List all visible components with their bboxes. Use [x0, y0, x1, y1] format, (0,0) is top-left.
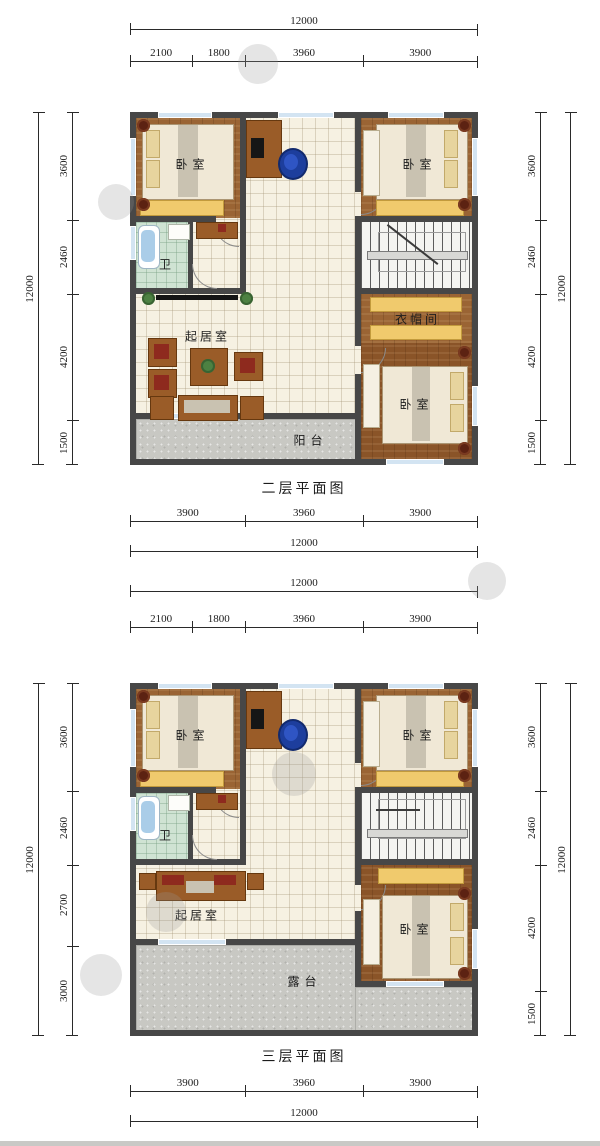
nightstand-lamp: [458, 442, 471, 455]
wall-inner: [355, 112, 361, 192]
wall-inner: [130, 859, 246, 865]
dim-value: 12000: [24, 275, 36, 303]
bed-pillow: [444, 160, 458, 188]
window: [472, 709, 478, 767]
dim-value: 12000: [130, 537, 478, 549]
dim-segment: 12000: [130, 532, 478, 552]
window: [158, 112, 212, 118]
floor-plan-sheet: 12000 2100 1800 3960 3900 12000 3600 246…: [0, 0, 600, 1146]
wardrobe: [140, 200, 224, 216]
tv: [156, 295, 238, 300]
bed-pillow: [444, 130, 458, 158]
watermark-circle: [98, 184, 134, 220]
nightstand-lamp: [137, 198, 150, 211]
dim-segment: 12000: [130, 1102, 478, 1122]
desk-chair-seat: [284, 725, 298, 741]
stair-handrail: [367, 251, 468, 260]
dim-value: 12000: [556, 275, 568, 303]
desk-chair-seat: [284, 154, 298, 170]
vase: [218, 795, 226, 803]
plan2-dim-bottom-segments: 3900 3960 3900: [130, 1072, 478, 1092]
room-label-bedroom-tl: 卧室: [170, 156, 209, 173]
plan1-dim-right-total: 12000: [570, 112, 571, 465]
dim-value: 4200: [526, 917, 538, 939]
dim-segment: 2460: [540, 220, 541, 294]
dim-value: 3900: [130, 507, 245, 519]
room-label-cloak: 衣帽间: [392, 311, 440, 328]
dim-segment: 3900: [363, 502, 478, 522]
wall-bottom: [130, 1030, 478, 1036]
dim-value: 2460: [526, 246, 538, 268]
plan2-dim-right-segments: 3600 2460 4200 1500: [540, 683, 541, 1036]
plan2-dim-top-total: 12000: [130, 572, 478, 592]
wall-inner: [355, 787, 361, 885]
sofa-cushion: [214, 875, 236, 885]
room-label-bedroom-tr: 卧室: [397, 727, 436, 744]
computer-monitor: [251, 709, 264, 729]
dim-segment: 3960: [245, 502, 362, 522]
armchair-cushion: [154, 344, 169, 359]
dim-value: 3900: [363, 47, 478, 59]
dim-value: 3600: [58, 726, 70, 748]
vase: [218, 224, 226, 232]
dim-value: 1800: [192, 47, 245, 59]
bed-pillow: [146, 701, 160, 729]
window: [130, 709, 136, 767]
stair-arrow: [376, 809, 420, 811]
room-label-bedroom-tl: 卧室: [170, 727, 209, 744]
plan1-dim-left-segments: 3600 2460 4200 1500: [72, 112, 73, 465]
plan1-title: 二层平面图: [262, 478, 347, 498]
dim-value: 1500: [526, 432, 538, 454]
sofa-seat: [186, 881, 214, 893]
room-terrace: [355, 987, 474, 1032]
hall-cabinet: [196, 793, 238, 810]
wall-inner: [355, 859, 478, 865]
room-label-bath: 卫: [159, 256, 171, 273]
side-table: [150, 396, 174, 420]
room-label-terrace: 露台: [282, 973, 321, 990]
dim-segment: 4200: [540, 865, 541, 991]
watermark-circle: [80, 954, 122, 996]
dim-segment: 3960: [245, 1072, 362, 1092]
dim-segment: 3600: [540, 112, 541, 220]
bed-pillow: [146, 160, 160, 188]
dim-value: 3900: [363, 507, 478, 519]
plan2-dim-left-total: 12000: [38, 683, 39, 1036]
bed-pillow: [146, 130, 160, 158]
wall-inner: [355, 288, 478, 294]
window: [388, 683, 444, 689]
window: [130, 226, 136, 260]
sofa-cushion: [184, 400, 230, 413]
window: [386, 981, 444, 987]
dim-value: 12000: [130, 15, 478, 27]
side-table: [240, 396, 264, 420]
room-label-living: 起居室: [182, 328, 230, 345]
wall-inner: [355, 216, 361, 346]
dim-value: 12000: [130, 1107, 478, 1119]
nightstand-lamp: [137, 119, 150, 132]
closet: [363, 899, 380, 965]
sofa-cushion: [162, 875, 184, 885]
bed-pillow: [450, 372, 464, 400]
dim-segment: 4200: [540, 294, 541, 420]
plan2-dim-top-segments: 2100 1800 3960 3900: [130, 608, 478, 628]
dim-value: 2700: [58, 894, 70, 916]
third-floor-plan-canvas: 卧室 卧室 卫 起居室 卧室 露台: [130, 683, 478, 1036]
room-label-bedroom-br: 卧室: [394, 921, 433, 938]
window: [388, 112, 444, 118]
dim-value: 3960: [245, 507, 362, 519]
nightstand-lamp: [458, 887, 471, 900]
dim-value: 3000: [58, 980, 70, 1002]
bed-pillow: [450, 903, 464, 931]
bathtub-basin: [141, 801, 155, 833]
bathtub-basin: [141, 230, 155, 262]
nightstand-lamp: [137, 690, 150, 703]
dim-segment: 12000: [38, 683, 39, 1036]
window: [472, 138, 478, 196]
dim-value: 1800: [192, 613, 245, 625]
table-plant: [201, 359, 215, 373]
bed-pillow: [450, 937, 464, 965]
sheet-edge: [0, 1141, 600, 1146]
dim-value: 2460: [526, 817, 538, 839]
wall-living-terrace: [130, 939, 158, 945]
closet: [363, 701, 380, 767]
wall-inner: [355, 216, 478, 222]
dim-segment: 12000: [130, 572, 478, 592]
dim-segment: 2460: [540, 791, 541, 865]
nightstand-lamp: [458, 119, 471, 132]
dim-segment: 1500: [540, 420, 541, 465]
plan1-dim-top-segments: 2100 1800 3960 3900: [130, 42, 478, 62]
dim-segment: 3900: [130, 502, 245, 522]
dim-segment: 2460: [72, 220, 73, 294]
armchair-cushion: [240, 358, 255, 373]
dim-value: 3960: [245, 613, 362, 625]
dim-segment: 4200: [72, 294, 73, 420]
closet: [363, 364, 380, 428]
wall-inner: [355, 683, 361, 763]
wardrobe: [140, 771, 224, 787]
window: [158, 683, 212, 689]
dim-segment: 1500: [540, 991, 541, 1036]
closet: [363, 130, 380, 196]
dim-segment: 12000: [38, 112, 39, 465]
side-table: [247, 873, 264, 890]
dim-value: 3600: [526, 155, 538, 177]
plan2-dim-bottom-total: 12000: [130, 1102, 478, 1122]
dim-value: 3900: [363, 1077, 478, 1089]
plan2-dim-left-segments: 3600 2460 2700 3000: [72, 683, 73, 1036]
dim-segment: 3900: [130, 1072, 245, 1092]
plan1-dim-right-segments: 3600 2460 4200 1500: [540, 112, 541, 465]
window: [472, 929, 478, 969]
dim-segment: 3600: [72, 683, 73, 791]
window: [472, 386, 478, 426]
plan2-dim-right-total: 12000: [570, 683, 571, 1036]
dim-value: 4200: [526, 346, 538, 368]
wall-inner: [355, 374, 361, 465]
wardrobe: [376, 200, 464, 216]
nightstand-lamp: [458, 346, 471, 359]
window: [130, 797, 136, 831]
nightstand-lamp: [458, 769, 471, 782]
wall-inner: [355, 911, 361, 987]
bed-pillow: [450, 404, 464, 432]
dim-value: 12000: [130, 577, 478, 589]
room-terrace: [136, 945, 357, 1032]
dim-value: 12000: [24, 846, 36, 874]
dim-value: 12000: [556, 846, 568, 874]
plan1-dim-bottom-segments: 3900 3960 3900: [130, 502, 478, 522]
plan1-dim-top-total: 12000: [130, 10, 478, 30]
dim-value: 3960: [245, 1077, 362, 1089]
dim-value: 2460: [58, 817, 70, 839]
dim-value: 3900: [363, 613, 478, 625]
dim-segment: 12000: [570, 112, 571, 465]
dim-segment: 2100: [130, 42, 192, 62]
watermark-circle: [238, 44, 278, 84]
dim-value: 3900: [130, 1077, 245, 1089]
dim-value: 1500: [58, 432, 70, 454]
window: [278, 683, 334, 689]
room-label-bath: 卫: [159, 827, 171, 844]
dim-segment: 12000: [130, 10, 478, 30]
window: [386, 459, 444, 465]
nightstand-lamp: [458, 690, 471, 703]
dim-value: 2100: [130, 613, 192, 625]
bed-pillow: [444, 701, 458, 729]
wall-living-terrace: [226, 939, 358, 945]
plant: [240, 292, 253, 305]
dim-segment: 3900: [363, 42, 478, 62]
room-label-bedroom-br: 卧室: [394, 396, 433, 413]
sink: [168, 224, 190, 240]
watermark-circle: [146, 892, 186, 932]
nightstand-lamp: [458, 967, 471, 980]
watermark-circle: [468, 562, 506, 600]
second-floor-plan-canvas: 卧室 卧室 卫 起居室 衣帽间 卧室 阳台: [130, 112, 478, 465]
dim-value: 4200: [58, 346, 70, 368]
plan1-dim-left-total: 12000: [38, 112, 39, 465]
dim-segment: 3960: [245, 608, 362, 628]
terrace-sliding-door: [158, 939, 226, 945]
plan2-title: 三层平面图: [262, 1046, 347, 1066]
dim-segment: 1500: [72, 420, 73, 465]
dim-segment: 2460: [72, 791, 73, 865]
wardrobe: [376, 771, 464, 787]
dim-segment: 1800: [192, 608, 245, 628]
dim-segment: 2100: [130, 608, 192, 628]
nightstand-lamp: [137, 769, 150, 782]
dim-value: 3600: [58, 155, 70, 177]
bed-pillow: [146, 731, 160, 759]
hall-cabinet: [196, 222, 238, 239]
computer-monitor: [251, 138, 264, 158]
dim-value: 3600: [526, 726, 538, 748]
wardrobe: [378, 868, 464, 884]
dim-value: 2100: [130, 47, 192, 59]
window: [130, 138, 136, 196]
nightstand-lamp: [458, 198, 471, 211]
wall-inner: [355, 787, 478, 793]
sink: [168, 795, 190, 811]
dim-segment: 12000: [570, 683, 571, 1036]
dim-segment: 3000: [72, 946, 73, 1036]
bed-pillow: [444, 731, 458, 759]
side-table: [139, 873, 156, 890]
dim-segment: 3600: [72, 112, 73, 220]
dim-value: 2460: [58, 246, 70, 268]
watermark-circle: [272, 752, 316, 796]
dim-value: 1500: [526, 1003, 538, 1025]
dim-segment: 3900: [363, 1072, 478, 1092]
armchair-cushion: [154, 375, 169, 390]
dim-segment: 2700: [72, 865, 73, 946]
window: [278, 112, 334, 118]
room-label-bedroom-tr: 卧室: [397, 156, 436, 173]
plan1-dim-bottom-total: 12000: [130, 532, 478, 552]
stair-handrail: [367, 829, 468, 838]
room-label-balcony: 阳台: [288, 432, 327, 449]
plant: [142, 292, 155, 305]
dim-segment: 3600: [540, 683, 541, 791]
dim-segment: 3900: [363, 608, 478, 628]
